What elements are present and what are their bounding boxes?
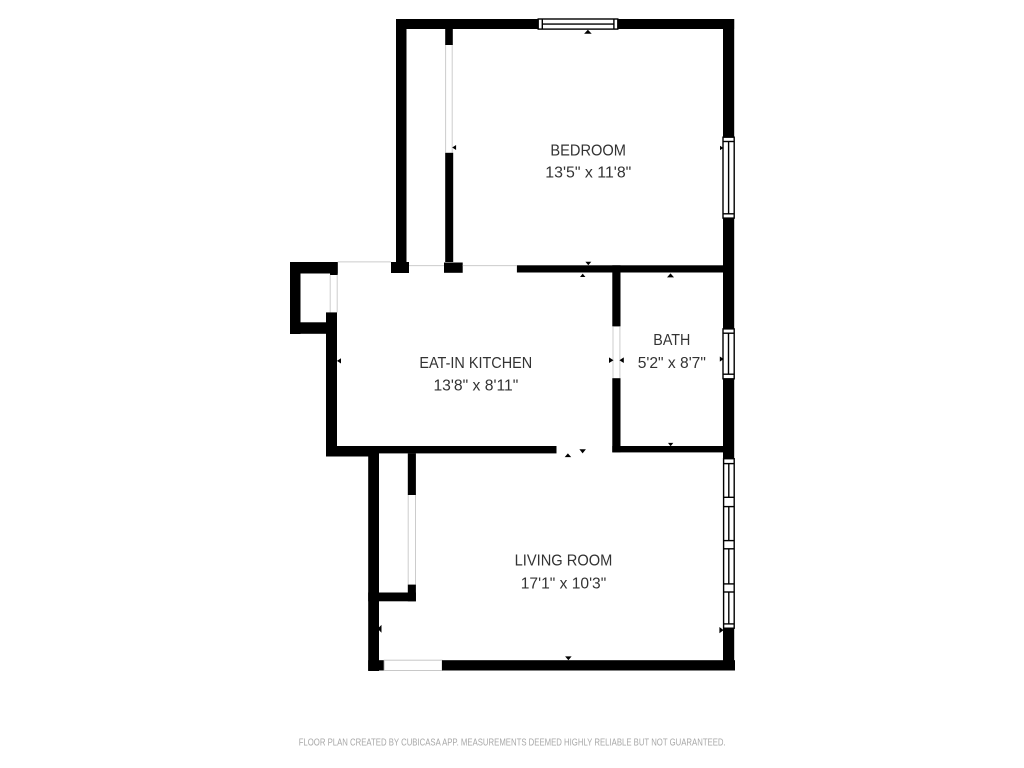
svg-text:13'8" x 8'11": 13'8" x 8'11" [433, 377, 518, 394]
svg-text:13'5" x 11'8": 13'5" x 11'8" [545, 165, 631, 182]
svg-text:LIVING ROOM: LIVING ROOM [515, 553, 613, 570]
svg-text:BATH: BATH [653, 332, 690, 349]
svg-text:5'2" x 8'7": 5'2" x 8'7" [638, 355, 706, 372]
svg-text:EAT-IN KITCHEN: EAT-IN KITCHEN [419, 355, 532, 372]
svg-text:17'1" x 10'3": 17'1" x 10'3" [521, 576, 607, 593]
svg-text:BEDROOM: BEDROOM [550, 142, 626, 159]
svg-text:FLOOR PLAN CREATED BY CUBICASA: FLOOR PLAN CREATED BY CUBICASA APP. MEAS… [299, 736, 726, 748]
